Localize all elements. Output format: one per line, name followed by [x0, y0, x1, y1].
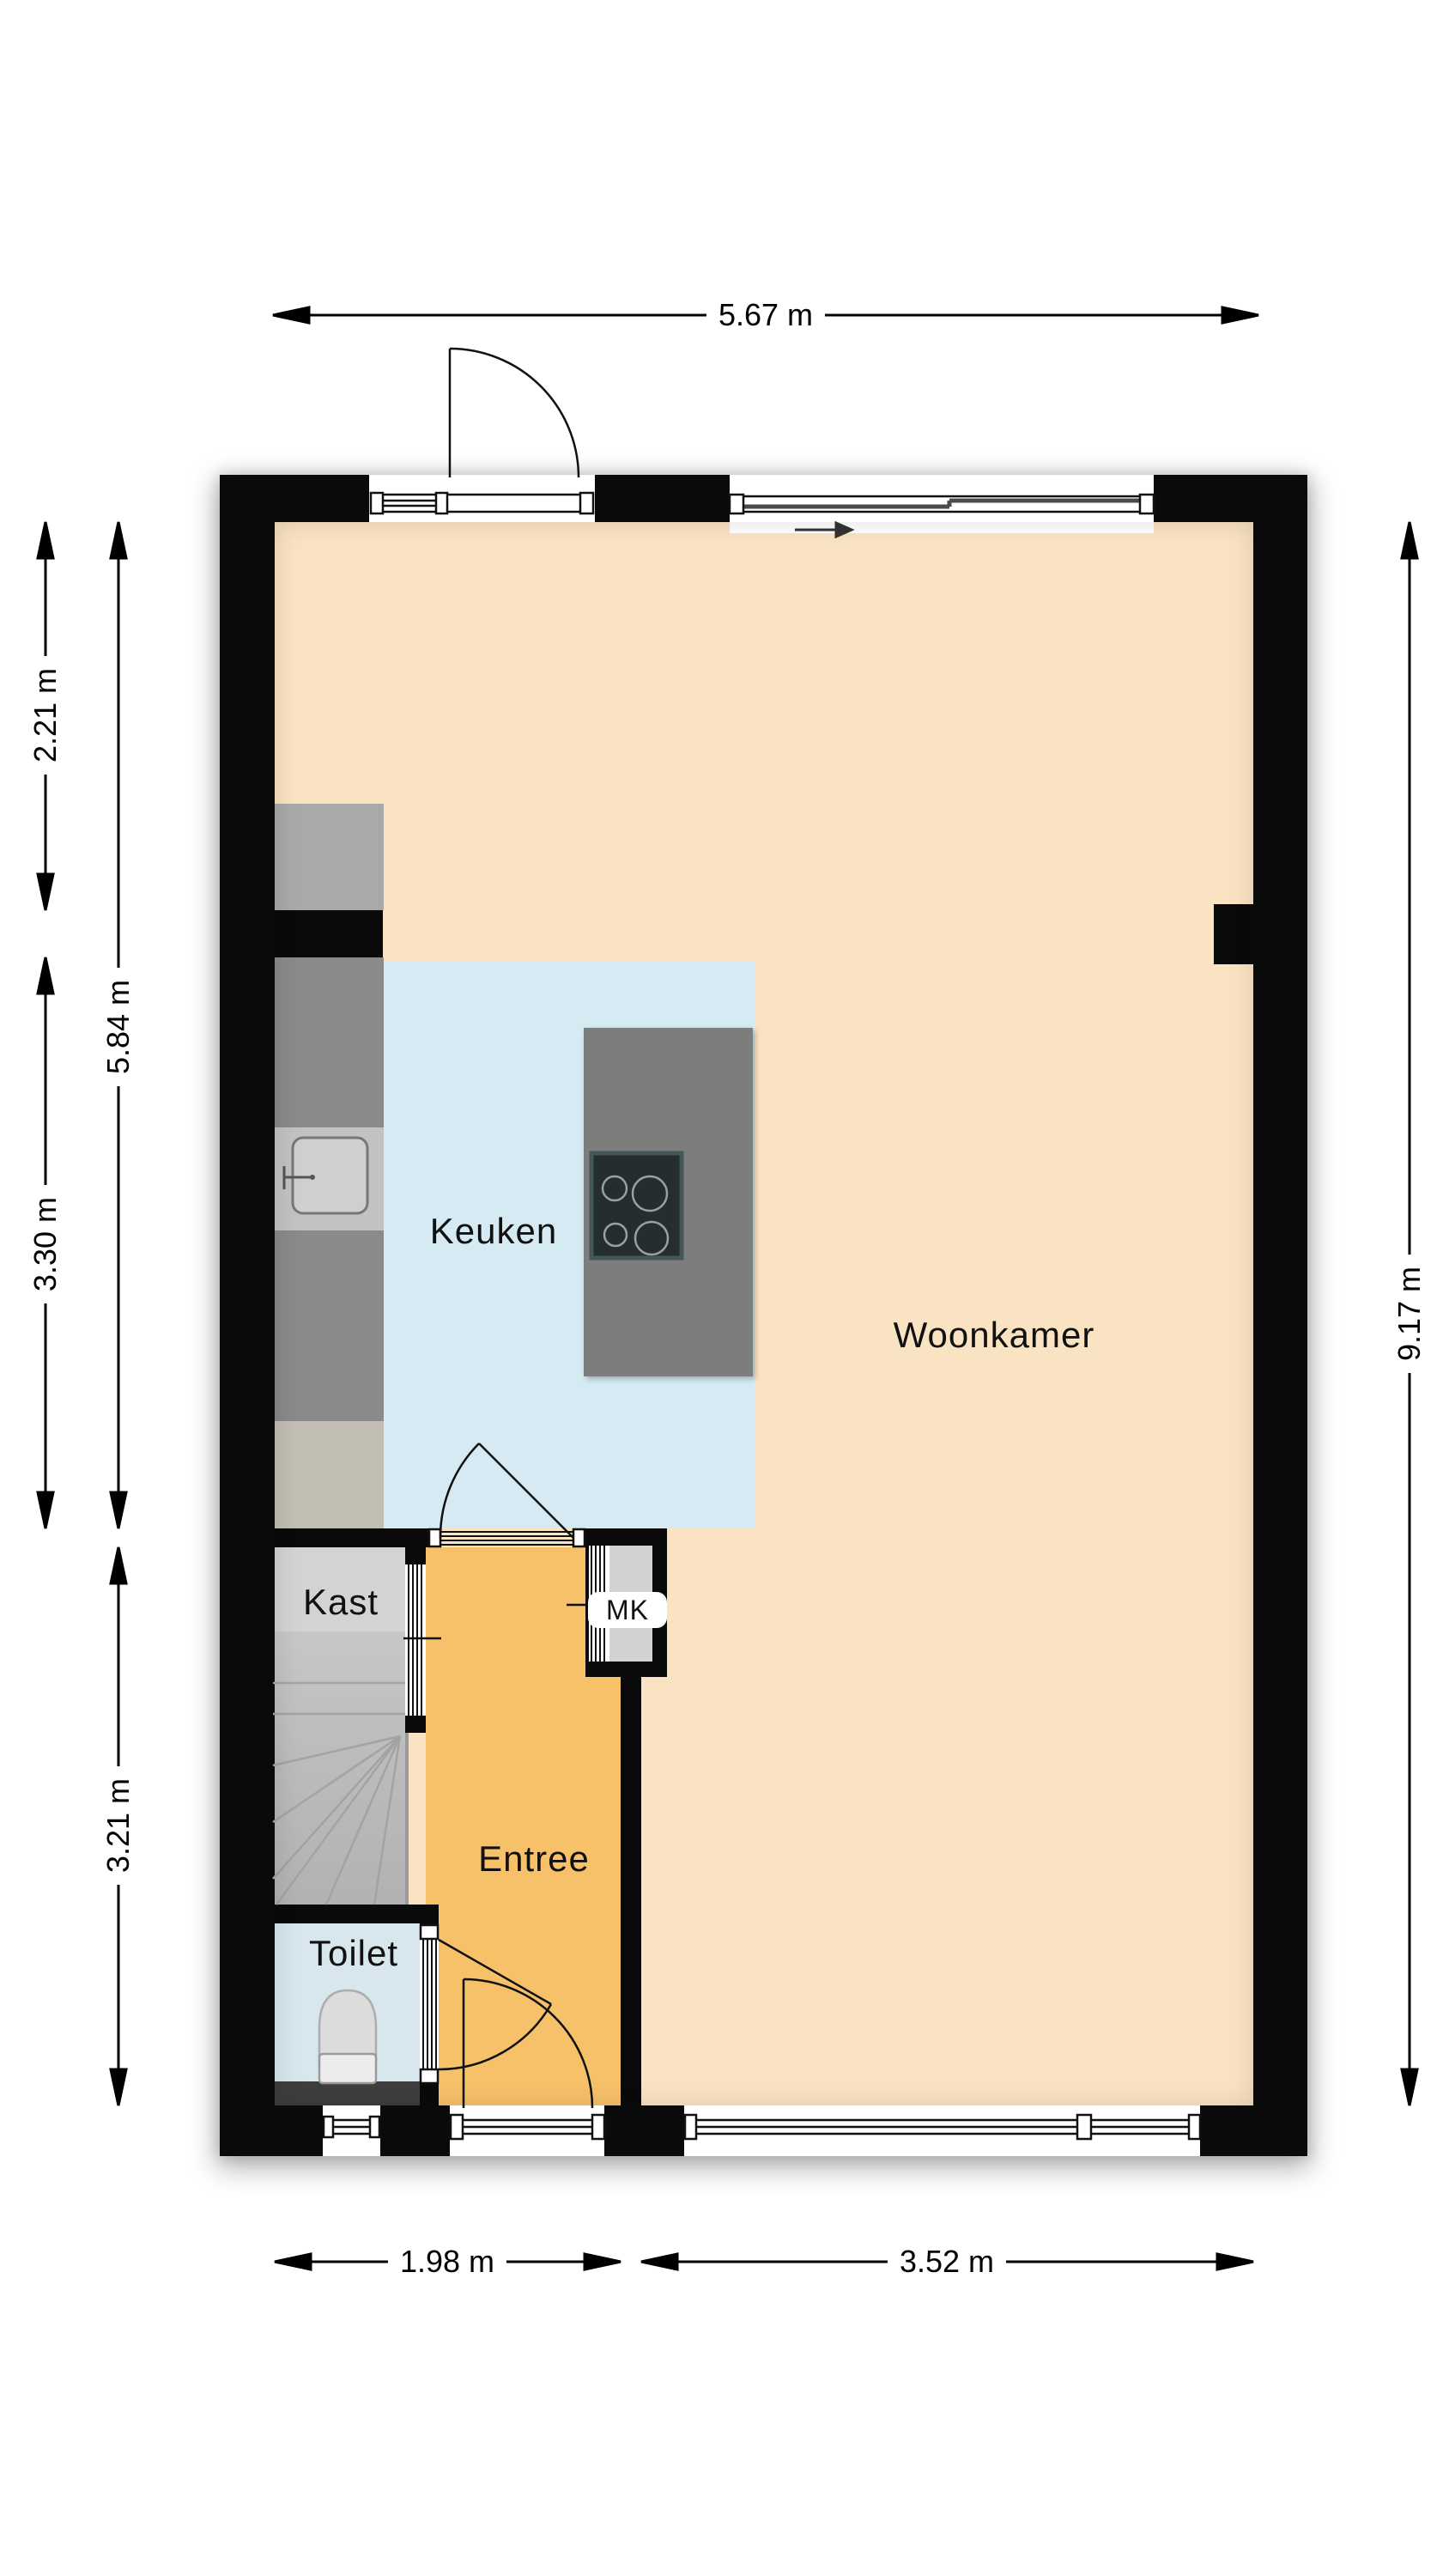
toilet-fixture-icon	[319, 1990, 376, 2083]
kitchen-door-panel	[440, 1532, 573, 1545]
top-window-glazing	[371, 495, 593, 512]
dim-left-upper-outer: 2.21 m	[27, 656, 64, 775]
back-door-swing	[450, 349, 579, 477]
toilet-door-panel	[423, 1939, 436, 2069]
mk-label: MK	[588, 1592, 667, 1628]
entree-label: Entree	[478, 1838, 590, 1880]
dim-left-lower-outer: 3.30 m	[27, 1185, 64, 1303]
dim-left-bottom-inner: 3.21 m	[100, 1766, 136, 1885]
dim-top-width: 5.67 m	[706, 297, 825, 333]
kitchen-door-swing	[440, 1443, 573, 1538]
sliding-window-panels	[743, 501, 1140, 507]
toilet-door-swing	[439, 1940, 551, 2069]
kast-label: Kast	[303, 1582, 379, 1623]
sliding-window-posts	[730, 495, 1154, 513]
front-door-swing	[464, 1979, 592, 2108]
cooktop-icon	[591, 1153, 682, 1258]
living-window-glazing	[696, 2120, 1189, 2134]
dim-bottom-left: 1.98 m	[388, 2244, 506, 2280]
dimension-lines	[38, 307, 1417, 2269]
front-door-sill	[463, 2120, 592, 2134]
top-window-posts	[371, 493, 593, 513]
floorplan-canvas: Woonkamer Keuken Entree Kast Toilet MK 5…	[0, 0, 1449, 2576]
stairs-treads	[273, 1683, 405, 1905]
linework-layer	[0, 0, 1449, 2576]
kast-door-panel	[403, 1564, 441, 1716]
dim-bottom-right: 3.52 m	[888, 2244, 1006, 2280]
toilet-label: Toilet	[309, 1933, 398, 1974]
sink-icon	[284, 1138, 367, 1213]
keuken-label: Keuken	[430, 1211, 557, 1252]
sliding-direction-arrow	[795, 523, 852, 537]
woonkamer-label: Woonkamer	[894, 1315, 1095, 1356]
dim-right-height: 9.17 m	[1391, 1255, 1428, 1373]
dim-left-full-inner: 5.84 m	[100, 968, 136, 1086]
